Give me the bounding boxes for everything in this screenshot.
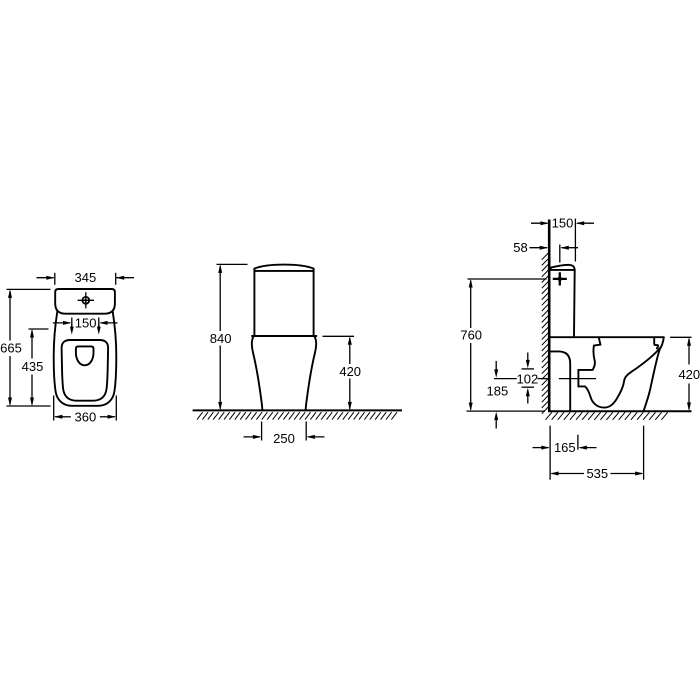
svg-text:58: 58: [513, 240, 527, 255]
svg-text:420: 420: [678, 367, 700, 382]
svg-text:420: 420: [339, 364, 361, 379]
svg-text:665: 665: [0, 341, 22, 356]
svg-text:185: 185: [487, 384, 509, 399]
svg-text:150: 150: [552, 216, 574, 231]
svg-text:150: 150: [75, 316, 97, 331]
svg-text:345: 345: [75, 270, 97, 285]
svg-text:102: 102: [517, 371, 539, 386]
svg-text:760: 760: [460, 328, 482, 343]
svg-text:840: 840: [210, 331, 232, 346]
svg-text:165: 165: [554, 440, 576, 455]
svg-text:435: 435: [22, 359, 44, 374]
svg-text:360: 360: [75, 409, 97, 424]
svg-text:535: 535: [586, 466, 608, 481]
svg-text:250: 250: [273, 431, 295, 446]
